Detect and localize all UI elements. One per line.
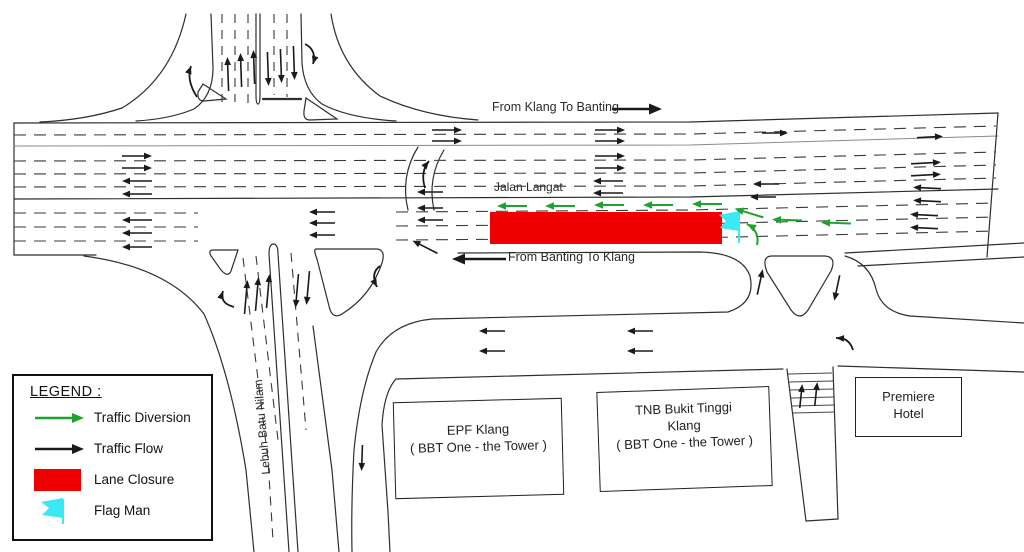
- building-premiere-line1: Premiere: [856, 388, 961, 405]
- traffic-diversion-arrow: [643, 201, 673, 209]
- legend-title: LEGEND :: [30, 384, 211, 400]
- legend-item-label: Traffic Diversion: [94, 410, 191, 425]
- traffic-flow-curve-arrow: [305, 44, 318, 64]
- building-tnb-bukit-tinggi: TNB Bukit Tinggi Klang ( BBT One - the T…: [596, 386, 772, 492]
- traffic-flow-arrow: [304, 271, 311, 305]
- legend-symbol: [32, 403, 94, 433]
- legend-item-lane-closure: Lane Closure: [14, 464, 211, 495]
- traffic-flow-arrow: [762, 130, 788, 137]
- traffic-diversion-arrow: [692, 200, 722, 208]
- diversion-arrow-icon: [32, 403, 90, 433]
- traffic-flow-arrow: [757, 269, 764, 294]
- traffic-flow-arrow: [309, 220, 335, 227]
- traffic-flow-arrow: [813, 382, 820, 406]
- traffic-flow-arrow: [265, 52, 272, 86]
- traffic-flow-arrow: [917, 133, 943, 140]
- traffic-flow-arrow: [122, 191, 152, 198]
- traffic-flow-arrow: [595, 127, 625, 134]
- traffic-flow-arrow: [237, 53, 244, 87]
- traffic-flow-arrow: [798, 384, 805, 408]
- traffic-diversion-arrow: [497, 202, 527, 210]
- traffic-flow-arrow: [122, 178, 152, 185]
- legend-item-label: Flag Man: [94, 503, 150, 518]
- legend-symbol: [32, 465, 94, 495]
- traffic-flow-arrow: [910, 211, 938, 218]
- legend-symbol: [32, 496, 94, 526]
- traffic-flow-arrow: [910, 224, 938, 231]
- legend-item-flag-man: Flag Man: [14, 495, 211, 526]
- building-epf-line2: ( BBT One - the Tower ): [395, 436, 562, 457]
- traffic-flow-arrow: [911, 159, 941, 166]
- traffic-diversion-arrow: [594, 201, 624, 209]
- legend-item-traffic-diversion: Traffic Diversion: [14, 402, 211, 433]
- label-from-klang-to-banting: From Klang To Banting: [492, 100, 619, 114]
- traffic-flow-arrow: [122, 230, 152, 237]
- traffic-flow-arrow: [291, 46, 298, 80]
- traffic-flow-arrow: [627, 348, 653, 355]
- traffic-flow-arrow: [413, 241, 438, 254]
- traffic-flow-curve-arrow: [836, 335, 853, 350]
- traffic-diversion-plan: From Klang To Banting Jalan Langat From …: [0, 0, 1024, 552]
- traffic-flow-arrow: [417, 217, 443, 224]
- label-from-banting-to-klang: From Banting To Klang: [508, 250, 635, 264]
- traffic-flow-arrow: [911, 171, 941, 178]
- legend-item-label: Lane Closure: [94, 472, 174, 487]
- traffic-flow-arrow: [417, 205, 443, 212]
- lane-closure-area: [490, 212, 722, 244]
- traffic-flow-arrow: [479, 348, 505, 355]
- traffic-flow-arrow: [358, 445, 365, 471]
- traffic-flow-arrow: [309, 209, 335, 216]
- traffic-flow-arrow: [452, 254, 506, 265]
- traffic-flow-arrow: [224, 57, 231, 91]
- hatched-crossing: [788, 373, 835, 413]
- traffic-flow-arrow: [595, 165, 625, 172]
- traffic-flow-arrow: [417, 189, 443, 196]
- traffic-flow-arrow: [913, 197, 941, 204]
- traffic-flow-curve-arrow: [185, 66, 197, 97]
- traffic-flow-arrow: [593, 190, 623, 197]
- traffic-flow-arrow: [612, 104, 662, 115]
- legend-item-label: Traffic Flow: [94, 441, 163, 456]
- traffic-flow-arrow: [432, 127, 462, 134]
- traffic-flow-arrow: [278, 49, 285, 83]
- traffic-flow-arrow: [432, 138, 462, 145]
- traffic-flow-arrow: [122, 153, 152, 160]
- traffic-flow-arrow: [833, 275, 840, 300]
- legend-item-traffic-flow: Traffic Flow: [14, 433, 211, 464]
- building-premiere-hotel: Premiere Hotel: [855, 377, 962, 437]
- legend-box: LEGEND : Traffic DiversionTraffic FlowLa…: [12, 374, 213, 541]
- traffic-flow-arrow: [479, 328, 505, 335]
- traffic-diversion-arrow: [545, 202, 575, 210]
- traffic-flow-arrow: [122, 244, 152, 251]
- traffic-diversion-curve-arrow: [747, 224, 758, 245]
- traffic-flow-arrow: [122, 217, 152, 224]
- label-jalan-langat: Jalan Langat: [494, 180, 563, 194]
- traffic-flow-arrow: [595, 153, 625, 160]
- flow-arrow-icon: [32, 434, 90, 464]
- legend-rows: Traffic DiversionTraffic FlowLane Closur…: [14, 402, 211, 526]
- traffic-flow-curve-arrow: [217, 291, 234, 307]
- traffic-flow-arrow: [593, 178, 623, 185]
- traffic-flow-arrow: [627, 328, 653, 335]
- flag-man-icon: [32, 496, 90, 526]
- traffic-flow-arrow: [122, 165, 152, 172]
- traffic-flow-curve-arrow: [421, 161, 429, 188]
- building-epf-klang: EPF Klang ( BBT One - the Tower ): [393, 398, 564, 499]
- building-premiere-line2: Hotel: [856, 405, 961, 422]
- traffic-flow-arrow: [595, 138, 625, 145]
- traffic-flow-arrow: [309, 232, 335, 239]
- traffic-flow-arrow: [753, 181, 779, 188]
- legend-symbol: [32, 434, 94, 464]
- lane-closure-icon: [32, 465, 90, 495]
